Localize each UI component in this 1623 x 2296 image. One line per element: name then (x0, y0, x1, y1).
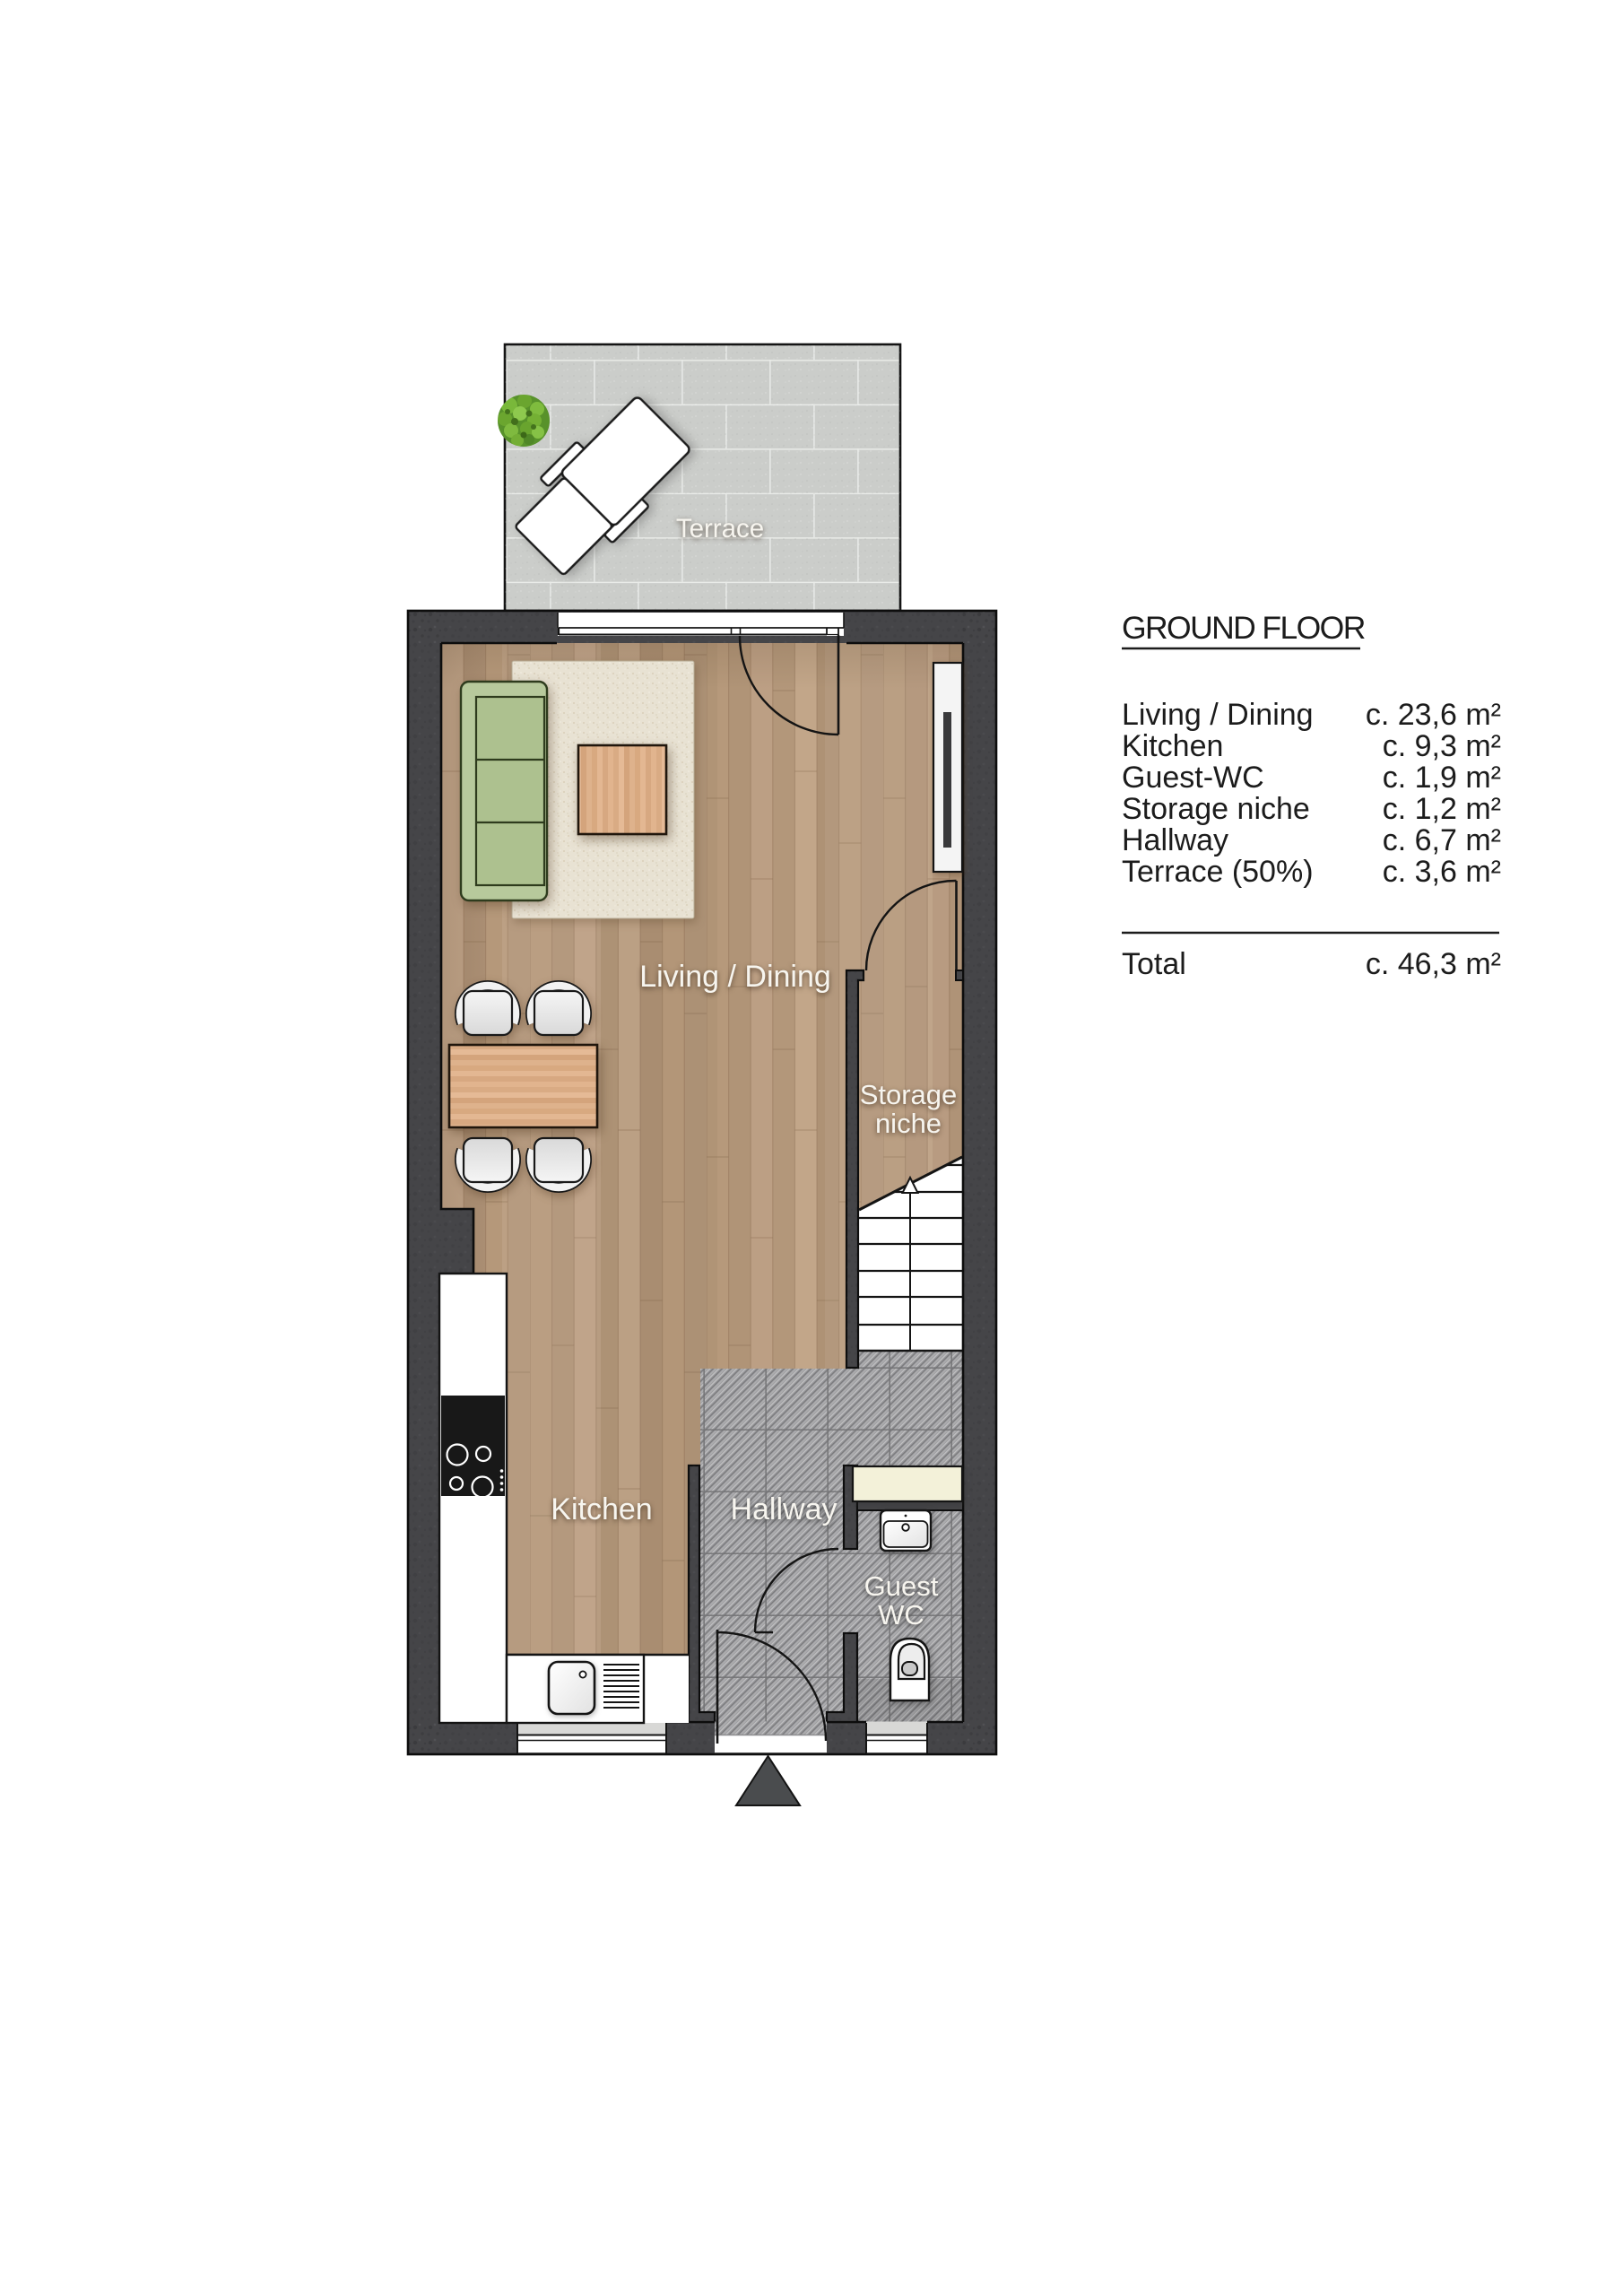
svg-text:Kitchen: Kitchen (1122, 729, 1223, 763)
svg-text:Kitchen: Kitchen (551, 1492, 652, 1526)
svg-text:WC: WC (878, 1599, 924, 1631)
svg-text:c. 46,3 m²: c. 46,3 m² (1366, 947, 1501, 981)
svg-text:Hallway: Hallway (730, 1492, 837, 1526)
svg-text:GROUND FLOOR: GROUND FLOOR (1122, 610, 1365, 646)
svg-text:Guest: Guest (864, 1570, 939, 1602)
svg-text:Storage niche: Storage niche (1122, 792, 1310, 826)
svg-text:Storage: Storage (860, 1079, 958, 1110)
svg-text:c. 1,2 m²: c. 1,2 m² (1383, 792, 1501, 826)
svg-text:Hallway: Hallway (1122, 823, 1228, 857)
svg-text:Guest-WC: Guest-WC (1122, 761, 1264, 795)
svg-text:c. 9,3 m²: c. 9,3 m² (1383, 729, 1501, 763)
svg-text:Terrace (50%): Terrace (50%) (1122, 855, 1314, 889)
svg-text:c. 6,7 m²: c. 6,7 m² (1383, 823, 1501, 857)
svg-text:niche: niche (875, 1108, 942, 1139)
svg-text:Living / Dining: Living / Dining (1122, 698, 1314, 732)
svg-text:Total: Total (1122, 947, 1186, 981)
svg-text:Living / Dining: Living / Dining (639, 960, 831, 994)
svg-text:c. 23,6 m²: c. 23,6 m² (1366, 698, 1501, 732)
svg-text:Terrace: Terrace (676, 514, 764, 544)
svg-text:c. 1,9 m²: c. 1,9 m² (1383, 761, 1501, 795)
svg-text:c. 3,6 m²: c. 3,6 m² (1383, 855, 1501, 889)
